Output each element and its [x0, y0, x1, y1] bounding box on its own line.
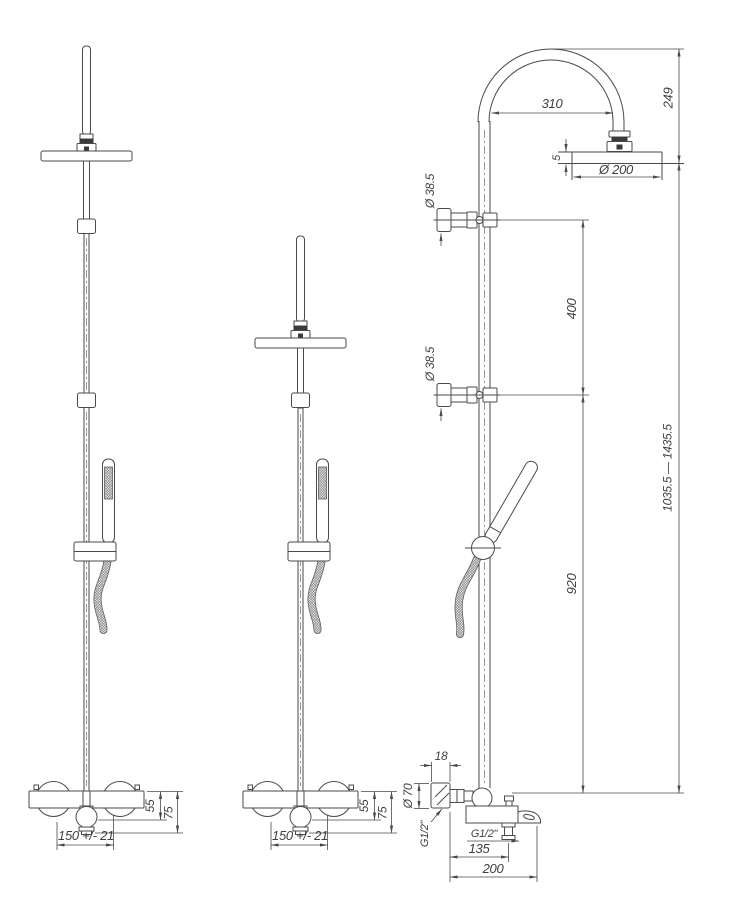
dim-lower-bracket-label: Ø 38.5 — [423, 346, 437, 382]
hand-shower-side — [459, 459, 540, 634]
shower-system-drawing: 150 +/- 21 55 75 150 +/- 21 — [0, 0, 730, 906]
dim-arm-reach-label: 310 — [542, 96, 564, 111]
dim-spout-height-label: 55 — [357, 799, 371, 812]
dim-head-rim-label: 5 — [551, 154, 563, 161]
technical-drawing-page: 150 +/- 21 55 75 150 +/- 21 — [0, 0, 730, 906]
dim-outlet-thread-label: G1/2" — [471, 828, 499, 840]
overhead-shower-front — [255, 321, 346, 348]
dim-rail-length-label: 920 — [564, 573, 579, 595]
dimensions-side: 310 249 Ø 200 5 Ø 38.5 Ø 38.5 400 920 — [401, 49, 684, 882]
riser-pipe — [297, 236, 305, 791]
dim-wall-plate-diameter-label: Ø 70 — [401, 783, 415, 809]
dim-spout-height-label: 55 — [143, 799, 157, 812]
dim-upper-bracket-label: Ø 38.5 — [423, 173, 437, 209]
dim-center-distance-label: 150 +/- 21 — [58, 828, 114, 843]
front-view-left: 150 +/- 21 55 75 — [29, 46, 183, 850]
dim-wall-plate-depth-label: 18 — [435, 749, 448, 763]
dim-head-diameter-label: Ø 200 — [598, 162, 634, 177]
hand-shower-front — [74, 459, 116, 630]
front-view-middle: 150 +/- 21 55 75 — [243, 236, 397, 850]
dim-bracket-spacing-label: 400 — [564, 298, 579, 320]
rail-collar — [292, 393, 310, 408]
dim-body-height-label: 75 — [376, 806, 390, 819]
rail-collar — [78, 219, 96, 234]
dim-arm-height-label: 249 — [661, 88, 676, 110]
curved-shower-arm — [478, 49, 624, 132]
dim-outlet-reach-label: 135 — [469, 841, 491, 856]
dim-center-distance-label: 150 +/- 21 — [272, 828, 328, 843]
dim-body-height-label: 75 — [162, 806, 176, 819]
dim-overall-height-label: 1035.5 — 1435.5 — [661, 424, 675, 512]
side-view: 310 249 Ø 200 5 Ø 38.5 Ø 38.5 400 920 — [401, 49, 684, 882]
dim-inlet-thread-label: G1/2" — [419, 819, 431, 847]
hand-shower-front — [288, 459, 330, 630]
overhead-shower-front — [41, 134, 132, 161]
rail-collar — [78, 393, 96, 408]
dim-spout-reach-label: 200 — [482, 861, 505, 876]
